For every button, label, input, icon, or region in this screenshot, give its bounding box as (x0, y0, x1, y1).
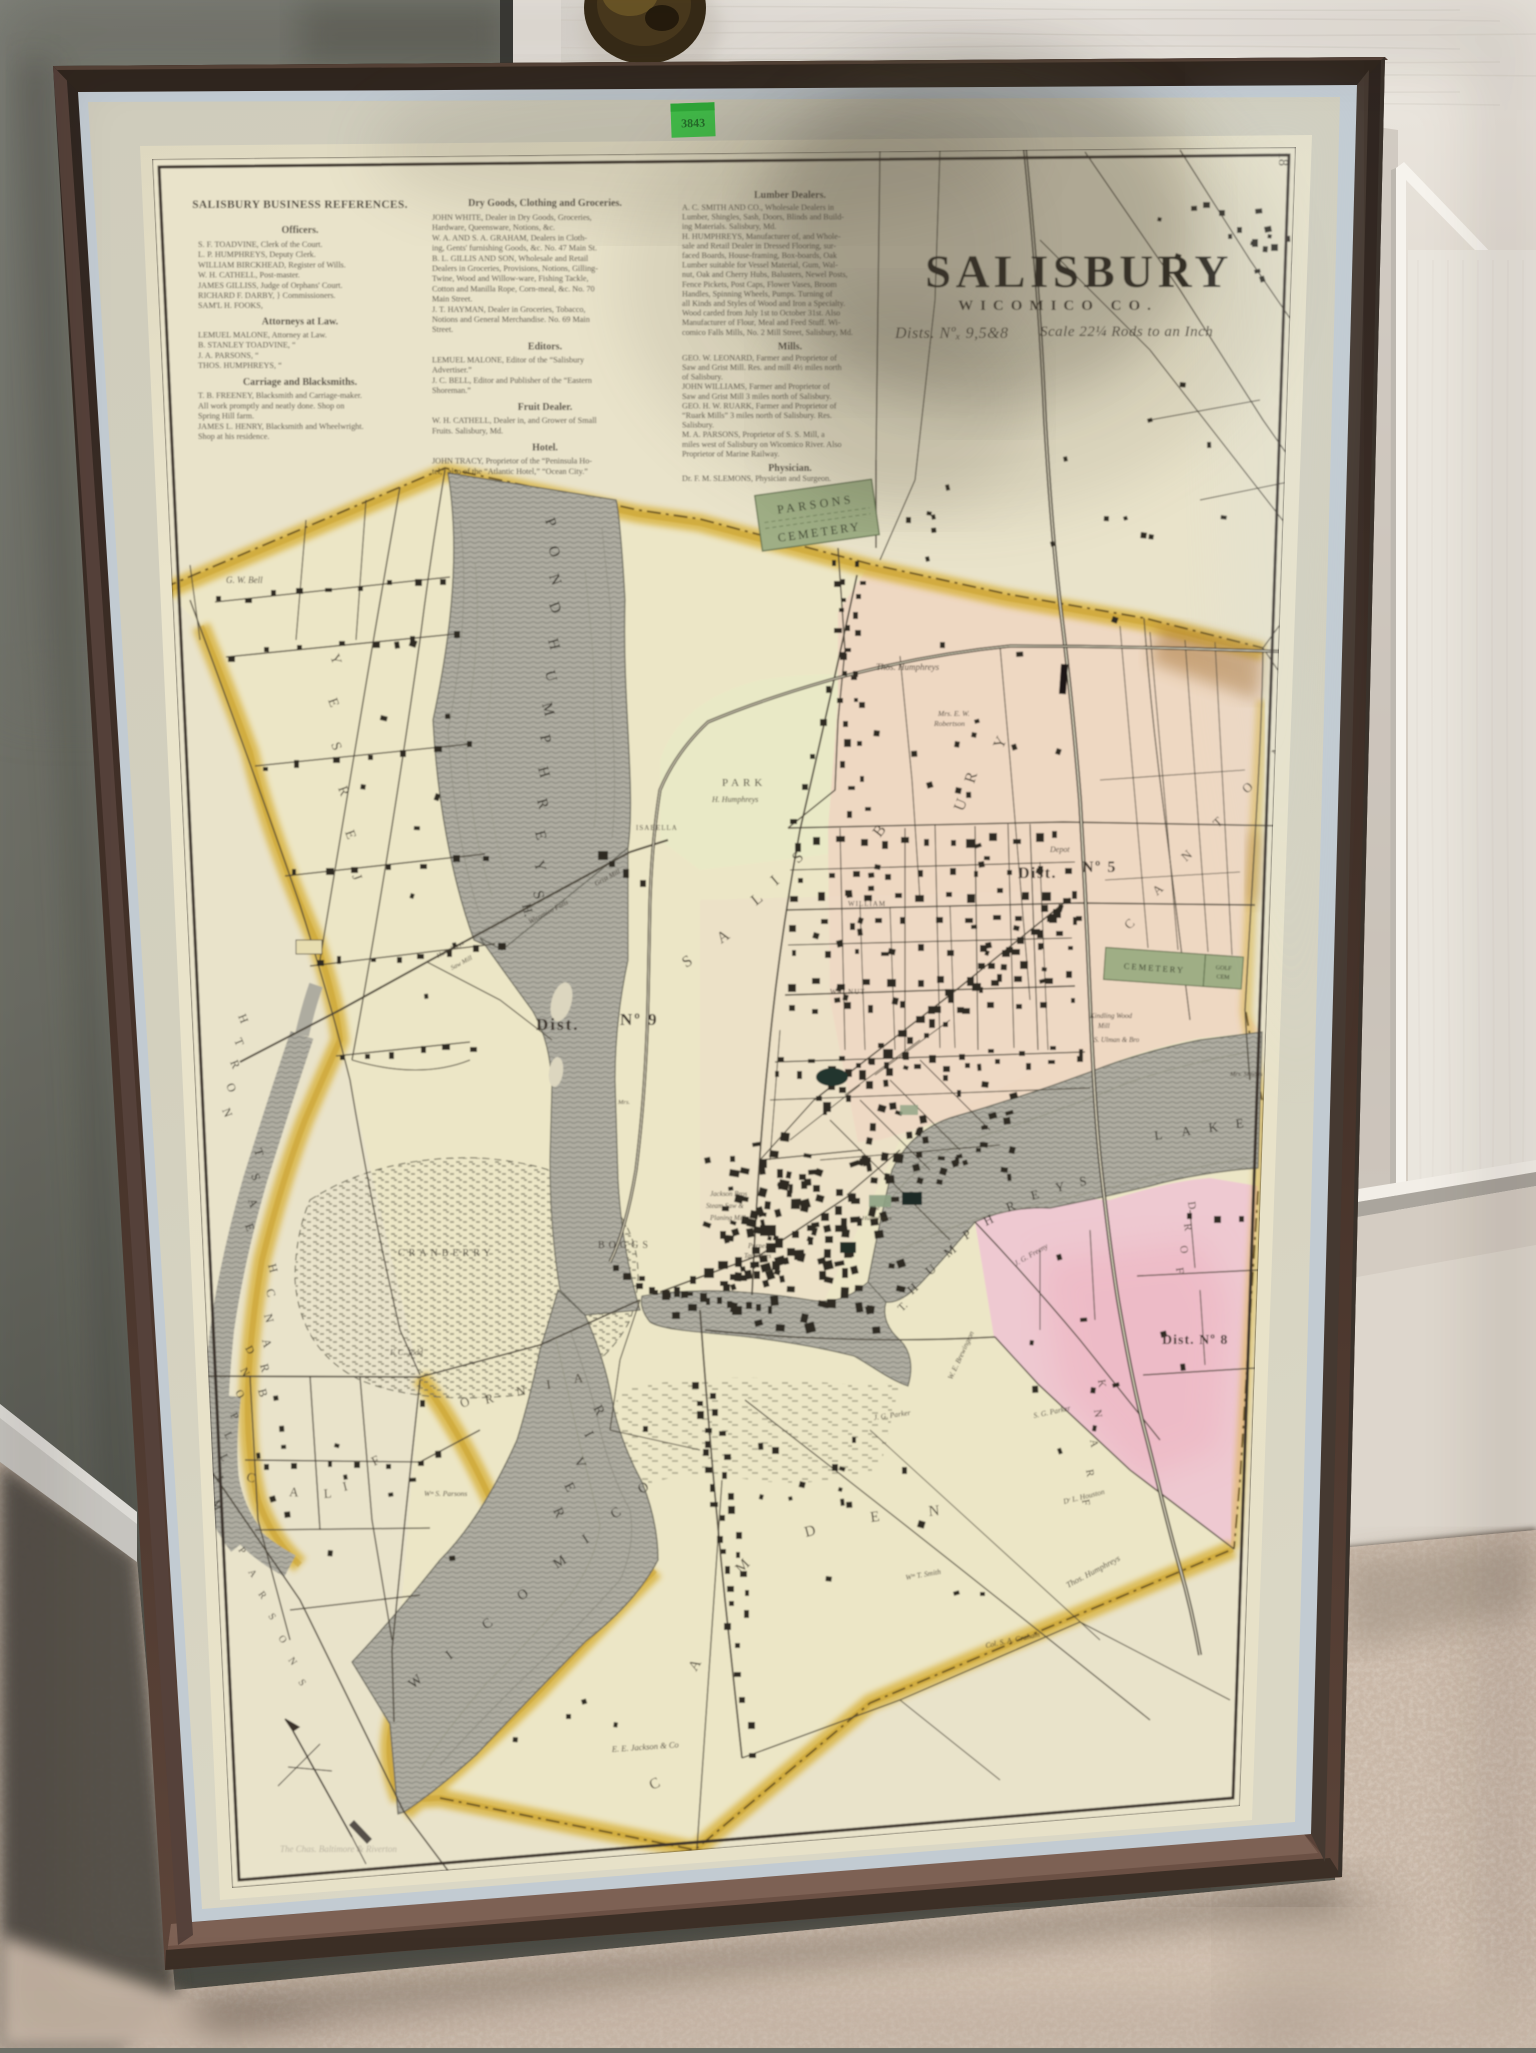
svg-text:PARK: PARK (722, 777, 766, 789)
svg-text:Depot: Depot (1049, 845, 1070, 854)
svg-text:Dist.: Dist. (1018, 865, 1057, 882)
svg-text:Carriage and Blacksmiths.: Carriage and Blacksmiths. (243, 377, 358, 388)
svg-text:Main Street.: Main Street. (432, 295, 472, 304)
svg-text:SALISBURY BUSINESS REFERENCES.: SALISBURY BUSINESS REFERENCES. (192, 199, 408, 211)
svg-text:Dealers in Groceries, Provisio: Dealers in Groceries, Provisions, Notion… (432, 264, 598, 273)
svg-text:RICHARD F. DARBY, } Commissio: RICHARD F. DARBY, } Commissioners. (198, 291, 336, 300)
svg-text:Nº 9: Nº 9 (620, 1010, 659, 1029)
svg-text:Shoreman.”: Shoreman.” (432, 386, 471, 395)
svg-text:Humphreys: Humphreys (861, 1215, 892, 1222)
svg-text:ing, Gents' furnishing Goods,: ing, Gents' furnishing Goods, &c. No. 47… (432, 244, 597, 253)
svg-text:B. STANLEY TOADVINE, “: B. STANLEY TOADVINE, “ (198, 341, 296, 350)
svg-text:B. L. GILLIS AND SON, Wholesal: B. L. GILLIS AND SON, Wholesale and Reta… (432, 254, 589, 263)
svg-text:The: The (870, 1205, 880, 1212)
svg-text:JAMES GILLISS, Judge of Orphan: JAMES GILLISS, Judge of Orphans' Court. (198, 281, 343, 290)
svg-text:LEMUEL MALONE, Attorney at Law: LEMUEL MALONE, Attorney at Law. (198, 330, 327, 339)
svg-text:Notions and General Merchandis: Notions and General Merchandise. No. 69 … (432, 315, 590, 324)
svg-text:Attorneys at Law.: Attorneys at Law. (262, 316, 339, 327)
svg-text:Twine, Wood and Willow-ware, F: Twine, Wood and Willow-ware, Fishing Tac… (432, 274, 589, 283)
svg-text:Editors.: Editors. (528, 341, 563, 352)
svg-text:Jackson Bros: Jackson Bros (710, 1190, 748, 1198)
svg-text:Dist. Nº 8: Dist. Nº 8 (1162, 1333, 1228, 1348)
svg-text:Steam Saw &: Steam Saw & (706, 1202, 744, 1210)
svg-text:WILLIAM: WILLIAM (848, 900, 886, 908)
svg-text:Thos. Humphreys: Thos. Humphreys (876, 662, 940, 672)
svg-text:JAMES L. HENRY, Blacksmith and: JAMES L. HENRY, Blacksmith and Wheelwrig… (198, 422, 364, 431)
svg-text:CEM: CEM (1216, 974, 1230, 981)
svg-text:T. B. FREENEY, Blacksmith and: T. B. FREENEY, Blacksmith and Carriage-m… (198, 391, 362, 400)
svg-text:Spring Hill farm.: Spring Hill farm. (198, 412, 254, 421)
svg-text:Tanneries: Tanneries (744, 1252, 772, 1260)
svg-text:SAM'L H. FOOKS,: SAM'L H. FOOKS, (198, 301, 263, 310)
svg-text:WILLIAM BIRCKHEAD, Register of: WILLIAM BIRCKHEAD, Register of Wills. (198, 260, 346, 269)
svg-text:CRANBERRY: CRANBERRY (398, 1248, 495, 1259)
svg-text:THOS. HUMPHREYS, “: THOS. HUMPHREYS, “ (198, 361, 282, 370)
svg-text:All work promptly and neatly d: All work promptly and neatly done. Shop … (198, 401, 344, 410)
svg-text:Advertiser.”: Advertiser.” (432, 366, 472, 375)
svg-text:E: E (1235, 1115, 1244, 1131)
svg-text:LEMUEL MALONE, Editor of the “: LEMUEL MALONE, Editor of the “Salisbury (432, 355, 585, 364)
svg-text:J. C. BELL, Editor and Publish: J. C. BELL, Editor and Publisher of the … (432, 376, 592, 385)
svg-text:F. C. Todd: F. C. Todd (389, 1348, 424, 1357)
svg-text:J. A. PARSONS,: J. A. PARSONS, “ (198, 351, 259, 360)
svg-text:N: N (928, 1503, 940, 1520)
svg-text:Fruit Dealer.: Fruit Dealer. (518, 402, 573, 413)
svg-text:L. P. HUMPHREYS, Deputy Clerk.: L. P. HUMPHREYS, Deputy Clerk. (198, 250, 316, 259)
svg-text:Street.: Street. (432, 325, 453, 334)
svg-text:S. Ulman & Bro: S. Ulman & Bro (1094, 1036, 1140, 1044)
svg-text:Mrs. E. W.: Mrs. E. W. (937, 709, 970, 718)
svg-text:Mrs.: Mrs. (617, 1099, 630, 1106)
svg-text:L: L (323, 1485, 332, 1501)
svg-text:ISABELLA: ISABELLA (636, 824, 678, 832)
svg-text:Wᵐ S. Parsons: Wᵐ S. Parsons (424, 1489, 467, 1498)
svg-text:W. H. CATHELL, Post-master.: W. H. CATHELL, Post-master. (198, 271, 300, 280)
svg-text:tel,” also of the “Atlantic Ho: tel,” also of the “Atlantic Hotel,” “Oce… (432, 467, 588, 476)
svg-text:JOHN TRACY, Proprietor of the: JOHN TRACY, Proprietor of the “Peninsula… (432, 457, 592, 466)
svg-text:W. H. CATHELL, Dealer in, and: W. H. CATHELL, Dealer in, and Grower of … (432, 416, 597, 425)
svg-text:Hotel.: Hotel. (532, 443, 558, 454)
svg-text:Kindling Wood: Kindling Wood (1089, 1012, 1132, 1020)
svg-text:Hardware, Queensware, Notions,: Hardware, Queensware, Notions, &c. (432, 223, 555, 232)
svg-text:Fruits. Salisbury, Md.: Fruits. Salisbury, Md. (432, 426, 503, 435)
svg-text:J. T. HAYMAN, Dealer in Grocer: J. T. HAYMAN, Dealer in Groceries, Tobac… (432, 305, 586, 314)
svg-text:W. A. AND S. A. GRAHAM, Dealer: W. A. AND S. A. GRAHAM, Dealers in Cloth… (432, 233, 587, 242)
svg-text:A: A (289, 1484, 300, 1500)
svg-text:Robertson: Robertson (933, 719, 965, 728)
svg-text:S. F. TOADVINE, Clerk of the C: S. F. TOADVINE, Clerk of the Court. (198, 240, 323, 249)
svg-text:H. Humphreys: H. Humphreys (711, 795, 758, 804)
svg-text:WALNUT: WALNUT (830, 988, 866, 996)
svg-text:Mill: Mill (1097, 1022, 1110, 1030)
svg-text:BOGGS: BOGGS (598, 1240, 652, 1251)
svg-text:Planing Mill: Planing Mill (709, 1214, 746, 1222)
svg-text:Shop at his residence.: Shop at his residence. (198, 432, 269, 441)
svg-text:Purnell: Purnell (747, 1242, 769, 1250)
svg-text:Cotton and Manilla Rope, Corn-: Cotton and Manilla Rope, Corn-meal, &c. … (432, 284, 595, 293)
svg-text:Nº 5: Nº 5 (1082, 859, 1117, 876)
svg-text:The Chas. Baltimore & Riverton: The Chas. Baltimore & Riverton (280, 1844, 397, 1854)
svg-text:GOLF: GOLF (1216, 965, 1233, 972)
svg-text:Officers.: Officers. (282, 225, 319, 236)
svg-text:Dist.: Dist. (536, 1015, 580, 1034)
svg-text:G. W. Bell: G. W. Bell (226, 575, 263, 585)
